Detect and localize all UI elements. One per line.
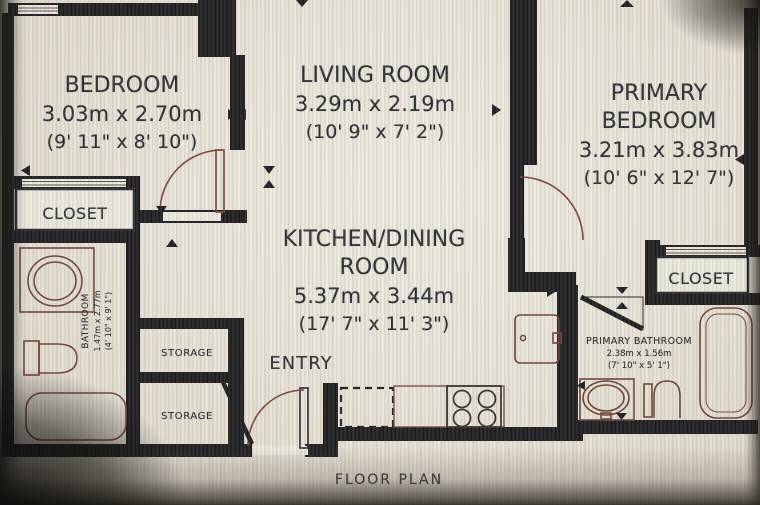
room-dim-metric: 3.29m x 2.19m: [295, 90, 455, 118]
room-dim-metric: 5.37m x 3.44m: [283, 282, 466, 310]
room-name: ROOM: [283, 254, 466, 282]
room-name: BEDROOM: [579, 108, 739, 136]
room-name: PRIMARY: [579, 80, 739, 108]
room-dim-metric: 1.47m x 2.77m: [92, 290, 103, 351]
room-dim-imperial: (10' 9" x 7' 2"): [295, 118, 455, 146]
room-dim-metric: 2.38m x 1.56m: [586, 348, 692, 360]
floor-plan-photo: BEDROOM 3.03m x 2.70m (9' 11" x 8' 10") …: [0, 0, 760, 505]
room-dim-metric: 3.03m x 2.70m: [42, 100, 202, 128]
kitchen-dining-label: KITCHEN/DINING ROOM 5.37m x 3.44m (17' 7…: [283, 226, 466, 338]
room-name: BEDROOM: [42, 72, 202, 100]
room-dim-imperial: (9' 11" x 8' 10"): [42, 128, 202, 156]
room-name: PRIMARY BATHROOM: [586, 336, 692, 348]
room-dim-imperial: (7' 10" x 5' 1"): [586, 360, 692, 372]
room-dim-imperial: (10' 6" x 12' 7"): [579, 164, 739, 192]
living-room-label: LIVING ROOM 3.29m x 2.19m (10' 9" x 7' 2…: [295, 62, 455, 146]
primary-bathroom-label: PRIMARY BATHROOM 2.38m x 1.56m (7' 10" x…: [586, 336, 692, 372]
labels-layer: BEDROOM 3.03m x 2.70m (9' 11" x 8' 10") …: [0, 0, 760, 505]
room-name: KITCHEN/DINING: [283, 226, 466, 254]
closet-right-label: CLOSET: [668, 265, 733, 293]
bedroom-label: BEDROOM 3.03m x 2.70m (9' 11" x 8' 10"): [42, 72, 202, 156]
room-dim-imperial: (17' 7" x 11' 3"): [283, 310, 466, 338]
bathroom-label: BATHROOM 1.47m x 2.77m (4' 10" x 9' 1"): [38, 262, 156, 380]
room-dim-metric: 3.21m x 3.83m: [579, 136, 739, 164]
closet-left-label: CLOSET: [42, 200, 107, 228]
room-name: LIVING ROOM: [295, 62, 455, 90]
storage-lower-label: STORAGE: [161, 403, 213, 431]
room-name: BATHROOM: [81, 290, 92, 351]
storage-upper-label: STORAGE: [161, 340, 213, 368]
primary-bedroom-label: PRIMARY BEDROOM 3.21m x 3.83m (10' 6" x …: [579, 80, 739, 192]
plan-title: FLOOR PLAN: [335, 466, 443, 494]
room-dim-imperial: (4' 10" x 9' 1"): [103, 290, 114, 351]
entry-label: ENTRY: [269, 350, 332, 378]
